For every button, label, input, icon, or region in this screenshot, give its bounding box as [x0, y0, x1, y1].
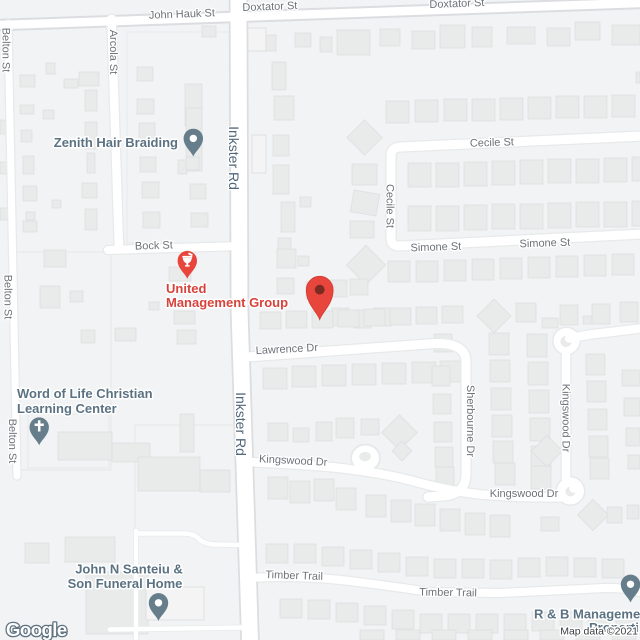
svg-text:Inkster Rd: Inkster Rd — [226, 126, 242, 190]
svg-text:Arcola St: Arcola St — [107, 30, 119, 75]
svg-text:Inkster Rd: Inkster Rd — [233, 392, 249, 456]
svg-text:Simone St: Simone St — [519, 237, 570, 251]
svg-text:Kingswood Dr: Kingswood Dr — [560, 384, 572, 453]
svg-text:Management Group: Management Group — [166, 295, 288, 310]
svg-text:Google: Google — [6, 619, 67, 640]
svg-text:Simone St: Simone St — [410, 241, 461, 255]
svg-text:Kingswood Dr: Kingswood Dr — [490, 488, 559, 500]
svg-text:Zenith Hair Braiding: Zenith Hair Braiding — [54, 135, 178, 150]
svg-text:Belton St: Belton St — [6, 419, 18, 464]
svg-text:Son Funeral Home: Son Funeral Home — [68, 576, 183, 591]
svg-text:Map data ©2021: Map data ©2021 — [560, 626, 638, 638]
svg-text:Belton St: Belton St — [2, 275, 14, 320]
svg-text:Bock St: Bock St — [135, 239, 173, 252]
svg-text:Sherbourne Dr: Sherbourne Dr — [464, 385, 476, 457]
svg-text:Learning Center: Learning Center — [17, 401, 117, 416]
svg-text:Timber Trail: Timber Trail — [419, 586, 477, 599]
svg-text:Doxtator St: Doxtator St — [242, 0, 297, 14]
svg-text:Word of Life Christian: Word of Life Christian — [17, 386, 153, 401]
svg-text:John N Santeiu &: John N Santeiu & — [75, 562, 183, 577]
svg-text:Belton St: Belton St — [0, 28, 12, 73]
svg-text:United: United — [166, 281, 207, 296]
svg-text:Cecile St: Cecile St — [384, 184, 396, 228]
svg-text:Cecile St: Cecile St — [470, 136, 514, 150]
svg-text:Timber Trail: Timber Trail — [265, 569, 323, 583]
svg-text:John Hauk St: John Hauk St — [149, 7, 215, 22]
